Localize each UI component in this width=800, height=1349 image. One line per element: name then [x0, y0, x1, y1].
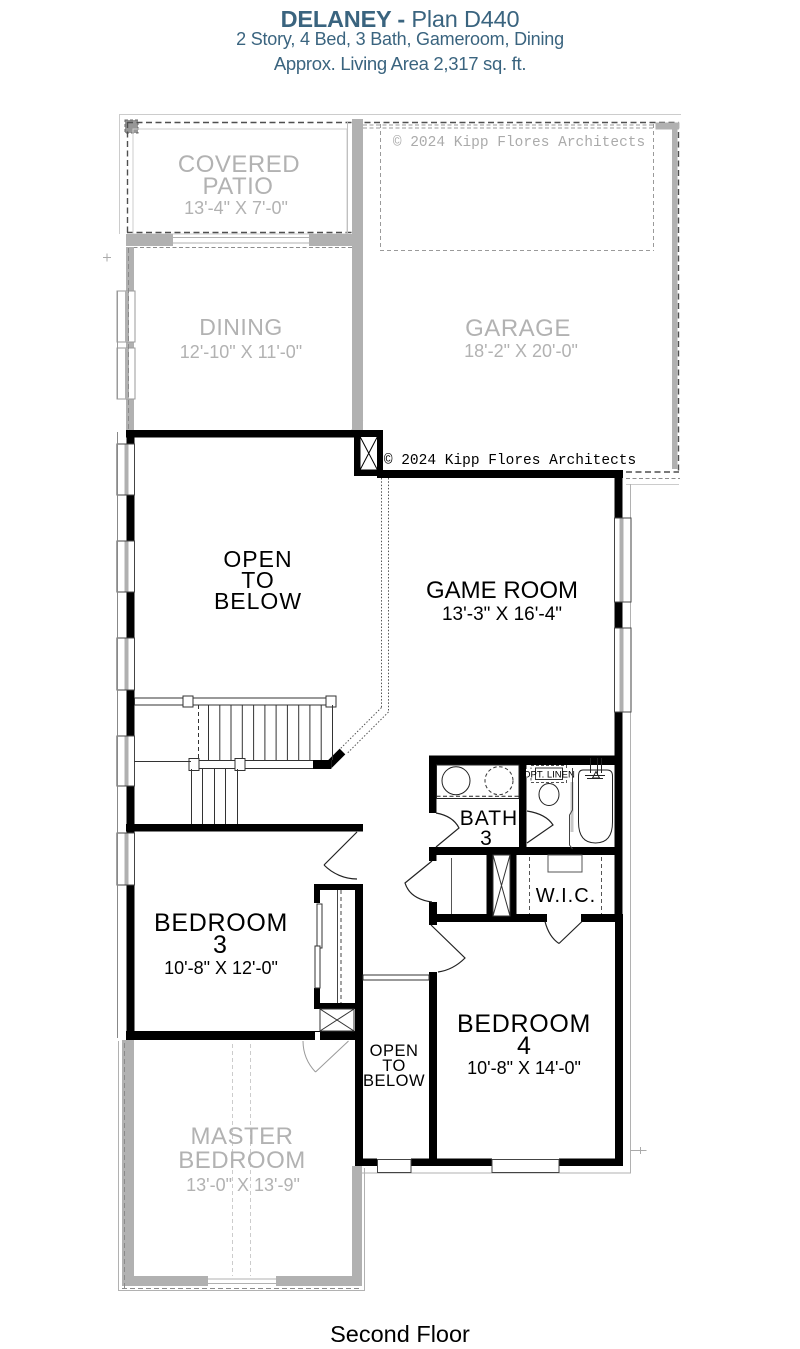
svg-text:4: 4 [517, 1032, 531, 1060]
svg-text:13'-4" X 7'-0": 13'-4" X 7'-0" [184, 198, 288, 218]
svg-text:18'-2" X 20'-0": 18'-2" X 20'-0" [464, 341, 578, 361]
svg-text:MASTER: MASTER [190, 1123, 293, 1150]
svg-text:13'-3" X 16'-4": 13'-3" X 16'-4" [442, 604, 562, 625]
svg-text:© 2024 Kipp Flores Architects: © 2024 Kipp Flores Architects [393, 135, 645, 151]
svg-text:3: 3 [213, 931, 227, 959]
svg-text:GARAGE: GARAGE [465, 315, 571, 342]
svg-text:2 Story, 4 Bed, 3 Bath, Gamero: 2 Story, 4 Bed, 3 Bath, Gameroom, Dining [236, 29, 564, 49]
svg-text:BELOW: BELOW [214, 588, 302, 614]
svg-text:OPT. LINEN: OPT. LINEN [523, 770, 575, 781]
svg-text:BELOW: BELOW [363, 1072, 425, 1090]
svg-text:PATIO: PATIO [203, 173, 274, 200]
svg-text:GAME ROOM: GAME ROOM [426, 577, 578, 604]
svg-text:© 2024 Kipp Flores Architects: © 2024 Kipp Flores Architects [384, 453, 636, 469]
svg-text:W.I.C.: W.I.C. [536, 885, 596, 907]
svg-text:12'-10" X 11'-0": 12'-10" X 11'-0" [180, 342, 302, 362]
svg-text:DINING: DINING [199, 314, 283, 340]
svg-text:BEDROOM: BEDROOM [178, 1147, 306, 1174]
svg-text:13'-0" X 13'-9": 13'-0" X 13'-9" [186, 1175, 300, 1195]
svg-text:3: 3 [480, 827, 492, 850]
svg-text:Approx. Living Area 2,317 sq.: Approx. Living Area 2,317 sq. ft. [274, 53, 526, 74]
svg-text:10'-8" X 14'-0": 10'-8" X 14'-0" [467, 1058, 581, 1078]
svg-text:10'-8" X 12'-0": 10'-8" X 12'-0" [164, 958, 278, 978]
svg-text:Second Floor: Second Floor [330, 1321, 470, 1347]
